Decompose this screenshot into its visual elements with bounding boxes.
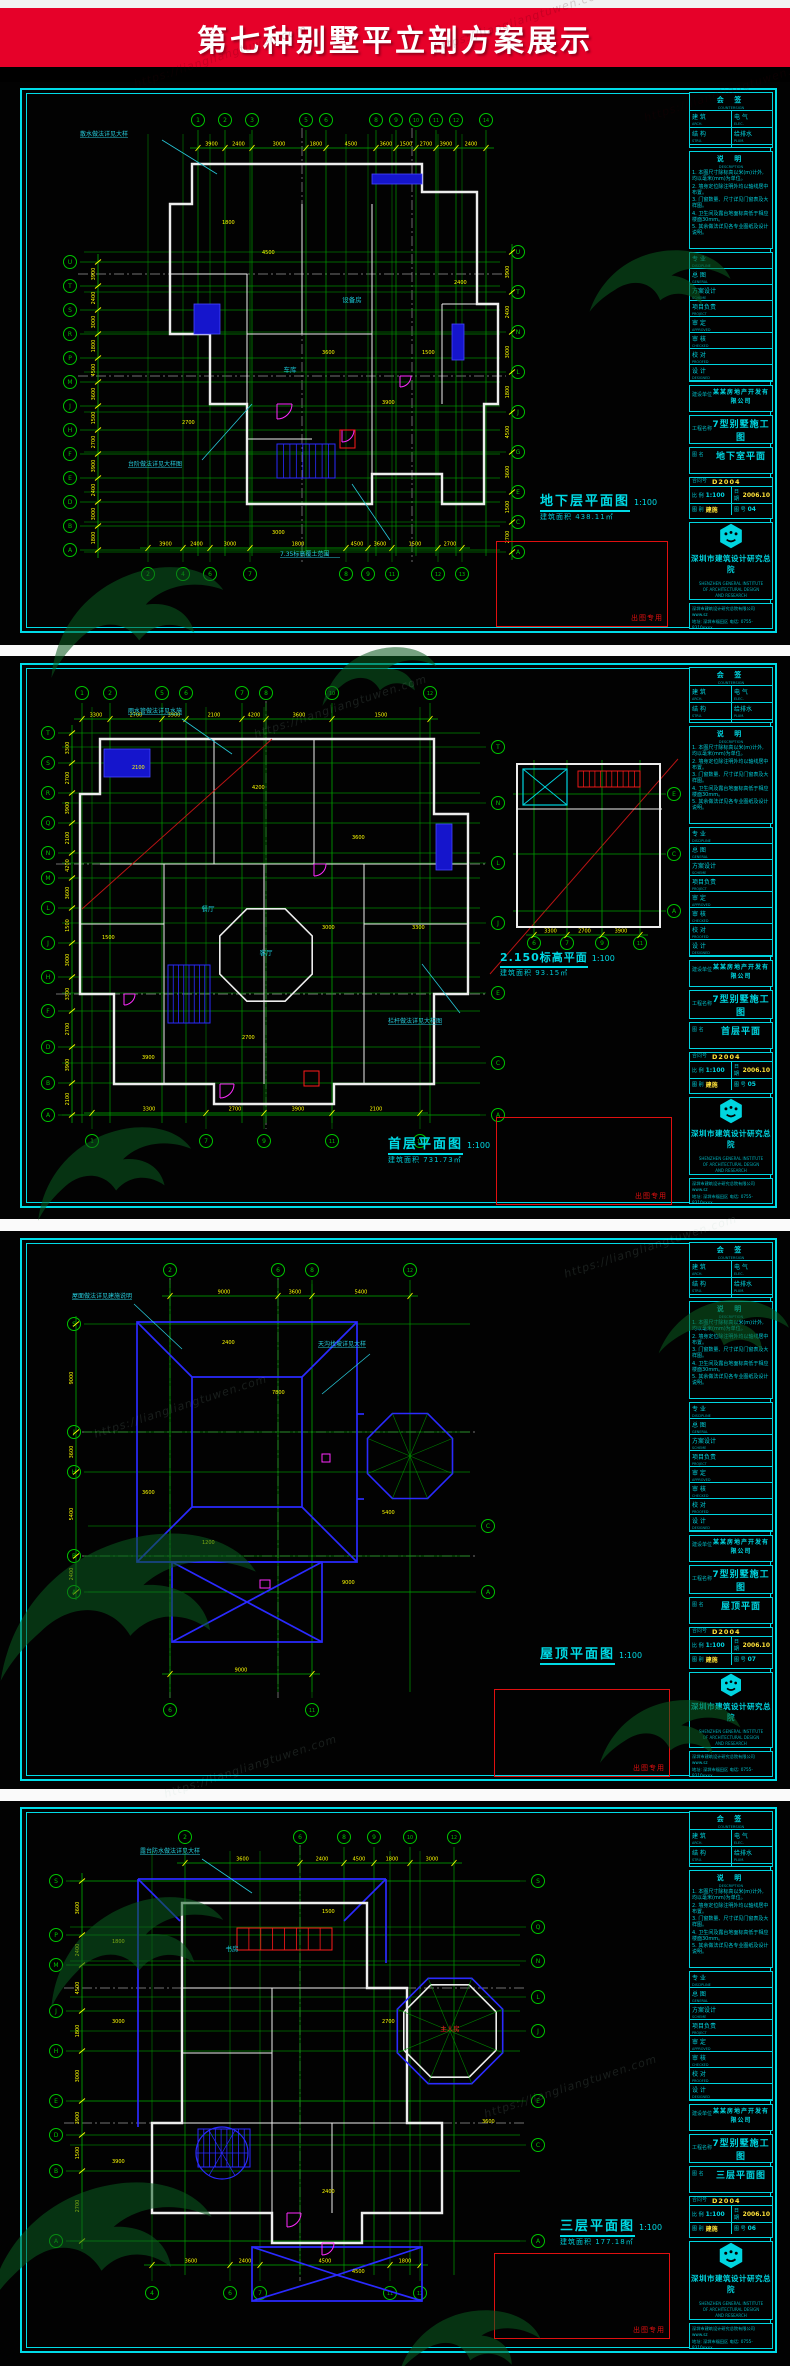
sign-box: 会 签COUNTERSIGN建 筑ARCH.电 气ELEC.结 构STRU.给排…	[689, 92, 773, 148]
svg-text:3000: 3000	[224, 542, 237, 548]
contact-box: 深圳市建筑设计研究总院有限公司 www.sz地址: 深圳市福田区 电话: 075…	[689, 603, 773, 629]
figure-scale: 1:100	[639, 2223, 662, 2232]
svg-text:4500: 4500	[352, 2269, 365, 2275]
svg-text:2700: 2700	[444, 542, 457, 548]
svg-text:3300: 3300	[90, 713, 103, 719]
svg-text:2: 2	[168, 1267, 172, 1274]
project-row: 工程名称7型别墅施工图	[689, 990, 773, 1019]
svg-text:3000: 3000	[322, 925, 335, 931]
figure-area: 建筑面积 438.11㎡	[540, 512, 614, 522]
owner-row: 建设单位某某房地产开发有限公司	[689, 385, 773, 412]
svg-text:3900: 3900	[615, 929, 628, 935]
personnel-row: 校 对PROOFED	[690, 1498, 772, 1514]
svg-text:12: 12	[427, 691, 433, 697]
personnel-row: 专 业DISCIPLINE	[690, 253, 772, 268]
plan-drawing-roof: 26812611SJHBACA9000360054009000360054002…	[22, 1254, 682, 1759]
notes-box: 说 明DESCRIPTION1. 本图尺寸除标高以米(m)计外, 均以毫米(mm…	[689, 151, 773, 249]
contact-box: 深圳市建筑设计研究总院有限公司 www.sz地址: 深圳市福田区 电话: 075…	[689, 2323, 773, 2349]
svg-text:1500: 1500	[102, 935, 115, 941]
svg-text:6: 6	[298, 1834, 302, 1841]
personnel-row: 审 核CHECKED	[690, 907, 772, 923]
personnel-row: 审 定APPROVED	[690, 891, 772, 907]
svg-text:3000: 3000	[91, 508, 97, 521]
svg-text:M: M	[53, 1962, 58, 1969]
svg-text:6: 6	[208, 571, 212, 578]
panel-basement: 123568910111214246789111213UTSRPMJHFEDBA…	[0, 82, 790, 645]
svg-text:1800: 1800	[112, 1939, 125, 1945]
figure-title: 三层平面图	[560, 2215, 635, 2237]
svg-text:T: T	[515, 289, 520, 296]
figure-title-roof: 屋顶平面图1:100	[540, 1643, 642, 1665]
svg-text:7: 7	[204, 1138, 208, 1145]
svg-text:3600: 3600	[374, 542, 387, 548]
stamp-label: 出图专用	[631, 613, 663, 623]
svg-text:C: C	[672, 851, 676, 858]
svg-text:U: U	[68, 259, 72, 266]
svg-text:1500: 1500	[375, 713, 388, 719]
svg-text:N: N	[536, 1958, 541, 1965]
personnel-row: 专 业DISCIPLINE	[690, 1403, 772, 1418]
svg-text:1500: 1500	[91, 412, 97, 425]
svg-text:4200: 4200	[248, 713, 261, 719]
svg-text:6: 6	[184, 690, 188, 697]
svg-text:1800: 1800	[505, 386, 511, 399]
svg-text:2400: 2400	[505, 306, 511, 319]
svg-text:2400: 2400	[75, 1944, 81, 1957]
svg-text:2100: 2100	[65, 832, 71, 845]
svg-text:1: 1	[90, 1138, 94, 1145]
panel-first-floor: 12567810121791113TSRQNMLJHFDBATNLJECA330…	[0, 656, 790, 1219]
company-logo-box: 深圳市建筑设计研究总院SHENZHEN GENERAL INSTITUTEOF …	[689, 522, 773, 600]
personnel-row: 总 图GENERAL	[690, 1418, 772, 1434]
svg-text:2100: 2100	[370, 1107, 383, 1113]
svg-text:11: 11	[637, 941, 643, 947]
svg-text:3: 3	[250, 117, 254, 124]
sign-cell: 结 构STRU.	[690, 702, 731, 719]
personnel-row: 审 核CHECKED	[690, 2051, 772, 2067]
contract-grid: 合同号D2004比 例 1:100日 期 2006.10图 别 建施图 号 05	[689, 1052, 773, 1094]
svg-text:6: 6	[276, 1267, 280, 1274]
svg-text:D: D	[54, 2132, 59, 2139]
svg-text:1500: 1500	[409, 542, 422, 548]
svg-text:1500: 1500	[400, 142, 413, 148]
plan-drawing-first-floor: 12567810121791113TSRQNMLJHFDBATNLJECA330…	[22, 679, 682, 1184]
svg-text:1800: 1800	[292, 542, 305, 548]
figure-title-first-floor: 首层平面图1:100	[388, 1133, 490, 1155]
svg-text:B: B	[54, 2168, 58, 2175]
sign-cell: 暖 通HVAC	[690, 719, 731, 723]
svg-text:D: D	[46, 1044, 51, 1051]
sign-cell: 电 气ELEC.	[731, 1260, 772, 1277]
svg-text:3900: 3900	[91, 460, 97, 473]
svg-text:散水做法详见大样: 散水做法详见大样	[80, 130, 128, 138]
personnel-row: 专 业DISCIPLINE	[690, 1972, 772, 1987]
svg-text:6: 6	[168, 1707, 172, 1714]
detail-figure-title: 2.150标高平面	[500, 949, 588, 968]
svg-text:R: R	[46, 790, 50, 797]
svg-text:4500: 4500	[91, 364, 97, 377]
svg-text:2: 2	[183, 1834, 187, 1841]
svg-text:2400: 2400	[316, 1857, 329, 1863]
sign-box: 会 签COUNTERSIGN建 筑ARCH.电 气ELEC.结 构STRU.给排…	[689, 1242, 773, 1298]
svg-text:12: 12	[407, 1268, 413, 1274]
svg-text:4: 4	[150, 2290, 154, 2297]
project-row: 工程名称7型别墅施工图	[689, 415, 773, 444]
svg-text:4500: 4500	[505, 426, 511, 439]
personnel-row: 设 计DESIGNED	[690, 2083, 772, 2099]
personnel-box: 专 业DISCIPLINE总 图GENERAL方案设计SCHEME项目负责PRO…	[689, 252, 773, 382]
svg-text:1800: 1800	[310, 142, 323, 148]
svg-text:M: M	[45, 875, 50, 882]
sign-cell: 暖 通HVAC	[690, 1863, 731, 1867]
title-block-third-floor: 会 签COUNTERSIGN建 筑ARCH.电 气ELEC.结 构STRU.给排…	[688, 1811, 774, 2349]
svg-text:3300: 3300	[412, 925, 425, 931]
drawing-name: 屋顶平面	[712, 1599, 770, 1612]
svg-text:U: U	[516, 249, 520, 256]
svg-text:3900: 3900	[91, 268, 97, 281]
svg-text:2400: 2400	[69, 1568, 75, 1581]
sign-box: 会 签COUNTERSIGN建 筑ARCH.电 气ELEC.结 构STRU.给排…	[689, 667, 773, 723]
sign-cell: 建 筑ARCH.	[690, 1260, 731, 1277]
personnel-row: 校 对PROOFED	[690, 923, 772, 939]
svg-text:3600: 3600	[322, 350, 335, 356]
svg-text:D: D	[68, 499, 73, 506]
figure-scale: 1:100	[634, 498, 657, 507]
svg-text:2400: 2400	[190, 542, 203, 548]
company-logo-icon	[714, 2242, 748, 2269]
svg-text:9000: 9000	[342, 1580, 355, 1586]
note-item: 2. 墙身定位除注明外均以轴线居中布置。	[690, 183, 772, 197]
plan-drawing-basement: 123568910111214246789111213UTSRPMJHFEDBA…	[22, 104, 682, 609]
figure-title-third-floor: 三层平面图1:100	[560, 2215, 662, 2237]
note-item: 4. 卫生间及露台地面标高低于相应楼面30mm。	[690, 210, 772, 224]
svg-text:11: 11	[329, 1139, 335, 1145]
figure-area: 建筑面积 177.18㎡	[560, 2237, 634, 2247]
svg-text:T: T	[45, 730, 50, 737]
svg-text:H: H	[54, 2048, 59, 2055]
svg-text:2700: 2700	[75, 2200, 81, 2213]
svg-text:E: E	[54, 2098, 58, 2105]
svg-text:9000: 9000	[69, 1372, 75, 1385]
stamp-box: 出图专用	[496, 541, 668, 627]
figure-title: 首层平面图	[388, 1133, 463, 1155]
svg-text:P: P	[68, 355, 72, 362]
personnel-row: 审 核CHECKED	[690, 1482, 772, 1498]
svg-text:1800: 1800	[222, 220, 235, 226]
note-item: 3. 门窗数量、尺寸详见门窗表及大样图。	[690, 196, 772, 210]
svg-text:9000: 9000	[218, 1290, 231, 1296]
panel-separator	[0, 1219, 790, 1231]
drawing-name-row: 图 名屋顶平面	[689, 1597, 773, 1624]
svg-text:7.35标高覆土范围: 7.35标高覆土范围	[280, 550, 329, 558]
page-title: 第七种别墅平立剖方案展示	[197, 16, 593, 60]
svg-text:2: 2	[108, 690, 112, 697]
owner-row: 建设单位某某房地产开发有限公司	[689, 960, 773, 987]
personnel-row: 总 图GENERAL	[690, 268, 772, 284]
company-logo-icon	[714, 1673, 748, 1697]
svg-text:1500: 1500	[322, 1909, 335, 1915]
note-item: 4. 卫生间及露台地面标高低于相应楼面30mm。	[690, 1360, 772, 1374]
stamp-label: 出图专用	[633, 1763, 665, 1773]
personnel-row: 校 对PROOFED	[690, 2067, 772, 2083]
personnel-row: 项目负责PROJECT	[690, 875, 772, 891]
svg-text:3300: 3300	[65, 742, 71, 755]
company-name: 深圳市建筑设计研究总院	[690, 553, 772, 575]
drawing-name-row: 图 名首层平面	[689, 1022, 773, 1049]
top-whitespace	[0, 0, 790, 8]
svg-text:5: 5	[304, 117, 308, 124]
personnel-row: 方案设计SCHEME	[690, 2003, 772, 2019]
drawing-name-row: 图 名三层平面图	[689, 2166, 773, 2193]
contact-box: 深圳市建筑设计研究总院有限公司 www.sz地址: 深圳市福田区 电话: 075…	[689, 1751, 773, 1777]
svg-text:4500: 4500	[351, 542, 364, 548]
owner-row: 建设单位某某房地产开发有限公司	[689, 1535, 773, 1562]
svg-text:3900: 3900	[142, 1055, 155, 1061]
svg-text:1800: 1800	[386, 1857, 399, 1863]
svg-text:3600: 3600	[236, 1857, 249, 1863]
svg-text:G: G	[516, 449, 521, 456]
svg-text:3900: 3900	[65, 1059, 71, 1072]
svg-text:9: 9	[394, 117, 398, 124]
note-item: 5. 其余做法详见各专业图纸及设计说明。	[690, 798, 772, 812]
svg-text:J: J	[72, 1429, 75, 1436]
svg-text:C: C	[496, 1060, 500, 1067]
svg-text:3600: 3600	[380, 142, 393, 148]
sign-cell: 给排水PLUM.	[731, 1277, 772, 1294]
sign-cell: 暖 通HVAC	[690, 144, 731, 148]
svg-text:3600: 3600	[142, 1490, 155, 1496]
svg-text:9: 9	[372, 1834, 376, 1841]
sign-cell: 给排水PLUM.	[731, 127, 772, 144]
figure-title: 地下层平面图	[540, 490, 630, 512]
svg-text:车库: 车库	[284, 365, 298, 374]
sign-cell: 给排水PLUM.	[731, 702, 772, 719]
svg-text:E: E	[672, 791, 676, 798]
svg-text:5: 5	[160, 690, 164, 697]
svg-text:3600: 3600	[91, 388, 97, 401]
figure-scale: 1:100	[467, 1141, 490, 1150]
sign-cell	[731, 144, 772, 148]
sign-cell: 电 气ELEC.	[731, 110, 772, 127]
sign-box: 会 签COUNTERSIGN建 筑ARCH.电 气ELEC.结 构STRU.给排…	[689, 1811, 773, 1867]
svg-text:2: 2	[146, 571, 150, 578]
notes-box: 说 明DESCRIPTION1. 本图尺寸除标高以米(m)计外, 均以毫米(mm…	[689, 726, 773, 824]
svg-text:B: B	[68, 523, 72, 530]
personnel-row: 方案设计SCHEME	[690, 859, 772, 875]
sign-cell: 电 气ELEC.	[731, 685, 772, 702]
svg-text:3000: 3000	[112, 2019, 125, 2025]
svg-text:3900: 3900	[440, 142, 453, 148]
personnel-row: 制 图DRAWN	[690, 2099, 772, 2101]
svg-text:C: C	[536, 2142, 540, 2149]
svg-text:3600: 3600	[185, 2259, 198, 2265]
sign-cell: 建 筑ARCH.	[690, 685, 731, 702]
svg-text:11: 11	[309, 1708, 315, 1714]
sign-cell: 暖 通HVAC	[690, 1294, 731, 1298]
note-item: 5. 其余做法详见各专业图纸及设计说明。	[690, 1373, 772, 1387]
svg-text:3000: 3000	[65, 954, 71, 967]
note-item: 3. 门窗数量、尺寸详见门窗表及大样图。	[690, 1915, 772, 1929]
personnel-row: 设 计DESIGNED	[690, 1514, 772, 1530]
svg-text:5400: 5400	[69, 1508, 75, 1521]
svg-text:13: 13	[459, 572, 465, 578]
svg-text:N: N	[516, 329, 521, 336]
note-item: 4. 卫生间及露台地面标高低于相应楼面30mm。	[690, 785, 772, 799]
svg-text:7: 7	[248, 571, 252, 578]
note-item: 1. 本图尺寸除标高以米(m)计外, 均以毫米(mm)为单位。	[690, 1319, 772, 1333]
svg-text:3300: 3300	[143, 1107, 156, 1113]
personnel-row: 制 图DRAWN	[690, 1530, 772, 1532]
personnel-box: 专 业DISCIPLINE总 图GENERAL方案设计SCHEME项目负责PRO…	[689, 1971, 773, 2101]
drawing-name: 三层平面图	[712, 2168, 770, 2181]
svg-text:J: J	[54, 2008, 57, 2015]
sign-cell	[731, 1294, 772, 1298]
svg-text:10: 10	[329, 691, 335, 697]
project-row: 工程名称7型别墅施工图	[689, 2134, 773, 2163]
svg-text:2400: 2400	[322, 2189, 335, 2195]
personnel-row: 项目负责PROJECT	[690, 2019, 772, 2035]
svg-text:P: P	[54, 1932, 58, 1939]
svg-text:S: S	[46, 760, 50, 767]
svg-text:T: T	[495, 744, 500, 751]
svg-text:3900: 3900	[382, 400, 395, 406]
contract-grid: 合同号D2004比 例 1:100日 期 2006.10图 别 建施图 号 07	[689, 1627, 773, 1669]
svg-text:3900: 3900	[75, 2112, 81, 2125]
svg-text:Q: Q	[536, 1924, 541, 1931]
svg-text:1: 1	[80, 690, 84, 697]
personnel-row: 项目负责PROJECT	[690, 300, 772, 316]
svg-text:2700: 2700	[382, 2019, 395, 2025]
svg-text:5400: 5400	[382, 1510, 395, 1516]
svg-text:雨水管做法详见水施: 雨水管做法详见水施	[128, 707, 182, 715]
svg-text:E: E	[536, 2098, 540, 2105]
svg-text:1: 1	[196, 117, 200, 124]
svg-text:8: 8	[342, 1834, 346, 1841]
personnel-row: 设 计DESIGNED	[690, 364, 772, 380]
svg-text:10: 10	[413, 118, 419, 124]
svg-text:14: 14	[483, 118, 489, 124]
svg-text:2700: 2700	[182, 420, 195, 426]
sign-cell	[731, 719, 772, 723]
svg-text:栏杆做法详见大样图: 栏杆做法详见大样图	[388, 1017, 442, 1025]
svg-text:3300: 3300	[65, 988, 71, 1001]
svg-text:6: 6	[228, 2290, 232, 2297]
svg-text:天沟找坡详见大样: 天沟找坡详见大样	[318, 1340, 366, 1348]
svg-text:1800: 1800	[399, 2259, 412, 2265]
figure-area: 建筑面积 731.73㎡	[388, 1155, 462, 1165]
note-item: 2. 墙身定位除注明外均以轴线居中布置。	[690, 1902, 772, 1916]
svg-text:4200: 4200	[252, 785, 265, 791]
title-block-roof: 会 签COUNTERSIGN建 筑ARCH.电 气ELEC.结 构STRU.给排…	[688, 1242, 774, 1777]
svg-text:B: B	[46, 1080, 50, 1087]
personnel-row: 审 定APPROVED	[690, 316, 772, 332]
svg-text:Q: Q	[46, 820, 51, 827]
owner-row: 建设单位某某房地产开发有限公司	[689, 2104, 773, 2131]
svg-text:11: 11	[433, 118, 439, 124]
svg-text:3600: 3600	[482, 2119, 495, 2125]
sign-cell: 给排水PLUM.	[731, 1846, 772, 1863]
company-logo-box: 深圳市建筑设计研究总院SHENZHEN GENERAL INSTITUTEOF …	[689, 1097, 773, 1175]
svg-text:2700: 2700	[65, 772, 71, 785]
personnel-row: 审 定APPROVED	[690, 2035, 772, 2051]
personnel-row: 校 对PROOFED	[690, 348, 772, 364]
svg-text:4500: 4500	[75, 1982, 81, 1995]
svg-text:3900: 3900	[65, 802, 71, 815]
personnel-row: 方案设计SCHEME	[690, 1434, 772, 1450]
stamp-box: 出图专用	[494, 2253, 670, 2339]
personnel-box: 专 业DISCIPLINE总 图GENERAL方案设计SCHEME项目负责PRO…	[689, 1402, 773, 1532]
svg-text:J: J	[68, 403, 71, 410]
svg-text:3600: 3600	[352, 835, 365, 841]
svg-text:J: J	[516, 409, 519, 416]
svg-text:E: E	[516, 489, 520, 496]
note-item: 3. 门窗数量、尺寸详见门窗表及大样图。	[690, 1346, 772, 1360]
figure-scale: 1:100	[619, 1651, 642, 1660]
svg-text:4500: 4500	[319, 2259, 332, 2265]
stamp-box: 出图专用	[494, 1689, 670, 1777]
contract-grid: 合同号D2004比 例 1:100日 期 2006.10图 别 建施图 号 06	[689, 2196, 773, 2238]
svg-text:S: S	[54, 1878, 58, 1885]
company-name: 深圳市建筑设计研究总院	[690, 2273, 772, 2295]
svg-text:8: 8	[264, 690, 268, 697]
title-block-basement: 会 签COUNTERSIGN建 筑ARCH.电 气ELEC.结 构STRU.给排…	[688, 92, 774, 629]
svg-text:11: 11	[389, 572, 395, 578]
svg-text:3600: 3600	[69, 1446, 75, 1459]
svg-text:J: J	[536, 2028, 539, 2035]
svg-text:4500: 4500	[353, 1857, 366, 1863]
header-banner: 第七种别墅平立剖方案展示	[0, 8, 790, 67]
sign-cell: 结 构STRU.	[690, 1846, 731, 1863]
sign-cell: 结 构STRU.	[690, 1277, 731, 1294]
svg-text:3600: 3600	[289, 1290, 302, 1296]
svg-text:主人房: 主人房	[440, 2024, 460, 2033]
svg-text:9000: 9000	[235, 1668, 248, 1674]
svg-text:2700: 2700	[91, 436, 97, 449]
svg-text:1200: 1200	[202, 1540, 215, 1546]
svg-text:4: 4	[181, 571, 185, 578]
company-name: 深圳市建筑设计研究总院	[690, 1128, 772, 1150]
stamp-box: 出图专用	[496, 1117, 672, 1205]
stamp-label: 出图专用	[635, 1191, 667, 1201]
svg-text:2100: 2100	[65, 1093, 71, 1106]
svg-text:C: C	[486, 1523, 490, 1530]
svg-text:2400: 2400	[91, 292, 97, 305]
svg-text:2700: 2700	[242, 1035, 255, 1041]
svg-text:4500: 4500	[262, 250, 275, 256]
drawing-name: 地下室平面	[712, 449, 770, 462]
personnel-box: 专 业DISCIPLINE总 图GENERAL方案设计SCHEME项目负责PRO…	[689, 827, 773, 957]
svg-text:12: 12	[435, 572, 441, 578]
contract-grid: 合同号D2004比 例 1:100日 期 2006.10图 别 建施图 号 04	[689, 477, 773, 519]
svg-text:2400: 2400	[239, 2259, 252, 2265]
svg-text:3900: 3900	[112, 2159, 125, 2165]
sign-cell: 电 气ELEC.	[731, 1829, 772, 1846]
svg-text:7: 7	[258, 2290, 262, 2297]
svg-text:R: R	[68, 331, 72, 338]
svg-text:C: C	[516, 519, 520, 526]
svg-text:N: N	[496, 800, 501, 807]
svg-text:1800: 1800	[91, 532, 97, 545]
svg-text:8: 8	[344, 571, 348, 578]
drawing-name-row: 图 名地下室平面	[689, 447, 773, 474]
svg-text:2400: 2400	[232, 142, 245, 148]
personnel-row: 总 图GENERAL	[690, 843, 772, 859]
note-item: 2. 墙身定位除注明外均以轴线居中布置。	[690, 1333, 772, 1347]
figure-title: 屋顶平面图	[540, 1643, 615, 1665]
svg-text:12: 12	[451, 1835, 457, 1841]
svg-text:3600: 3600	[505, 466, 511, 479]
svg-text:书房: 书房	[226, 1944, 239, 1953]
